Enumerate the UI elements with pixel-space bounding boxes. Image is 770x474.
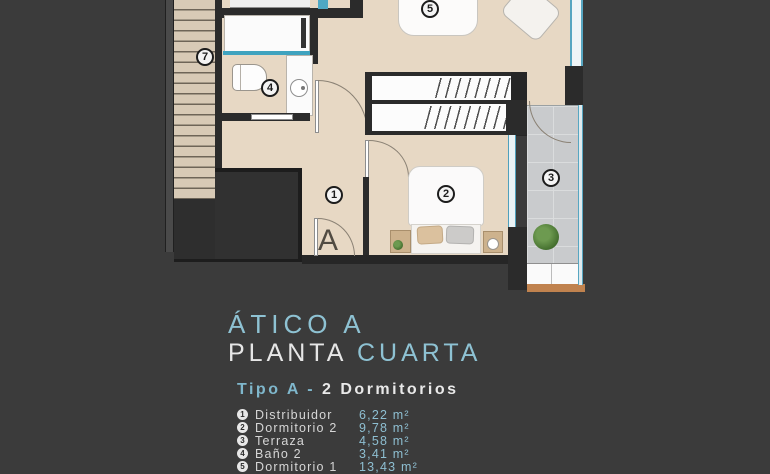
legend-room-area: 6,22 m²	[359, 408, 410, 422]
sink-drain	[301, 86, 305, 90]
legend-room-name: Terraza	[255, 434, 359, 448]
shower-fixture	[301, 18, 306, 48]
legend-room-area: 4,58 m²	[359, 434, 410, 448]
sink-icon	[290, 79, 308, 97]
unit-type-heading: Tipo A - 2 Dormitorios	[237, 381, 481, 399]
room-label-hall: 1	[325, 186, 343, 204]
room-label-room5: 5	[421, 0, 439, 18]
legend-bullet-icon: 2	[237, 422, 248, 433]
legend-row: 1 Distribuidor 6,22 m²	[237, 408, 481, 421]
bedroom2-left-wall	[363, 177, 369, 258]
terrace-window	[508, 135, 516, 227]
legend-room-area: 9,78 m²	[359, 421, 410, 435]
wardrobe-bottom	[372, 104, 520, 131]
terrace-wood-edge	[527, 284, 585, 292]
pillow-tan	[417, 225, 444, 244]
plant-icon	[393, 240, 403, 250]
info-panel: ÁTICO A PLANTA CUARTA Tipo A - 2 Dormito…	[228, 309, 481, 473]
legend-room-area: 3,41 m²	[359, 447, 410, 461]
corner-wall	[350, 0, 363, 18]
legend-room-name: Dormitorio 1	[255, 460, 359, 474]
terrace-bottom-pillar	[508, 227, 527, 290]
unit-type-rest: 2 Dormitorios	[322, 381, 459, 398]
legend-bullet-icon: 3	[237, 435, 248, 446]
room5-window-pillar	[565, 66, 583, 105]
legend-bullet-icon: 1	[237, 409, 248, 420]
floor-plan: A 7 4 5 1 2 3	[165, 0, 586, 292]
void-area	[215, 168, 302, 262]
hanger-icons	[422, 106, 518, 129]
side-table-icon	[487, 238, 499, 250]
terrace-top-pillar	[506, 100, 527, 135]
terrace-storage	[527, 263, 578, 284]
legend-room-area: 13,43 m²	[359, 460, 418, 474]
room-label-bath: 4	[261, 79, 279, 97]
legend-row: 3 Terraza 4,58 m²	[237, 434, 481, 447]
page-title: ÁTICO A	[228, 309, 481, 339]
room5-window	[570, 0, 583, 66]
window-glass-tick	[318, 0, 328, 9]
room-legend: 1 Distribuidor 6,22 m² 2 Dormitorio 2 9,…	[237, 408, 481, 473]
page-subtitle: PLANTA CUARTA	[228, 339, 481, 367]
legend-bullet-icon: 4	[237, 448, 248, 459]
wardrobe-top	[372, 76, 520, 100]
legend-room-name: Baño 2	[255, 447, 359, 461]
subtitle-word-cuarta: CUARTA	[357, 339, 481, 367]
room-label-stairs: 7	[196, 48, 214, 66]
legend-room-name: Distribuidor	[255, 408, 359, 422]
unit-type-accent: Tipo A -	[237, 381, 315, 398]
room-label-terrace: 3	[542, 169, 560, 187]
toilet-tank-line	[240, 65, 241, 90]
shower-tray	[224, 15, 310, 53]
pillow-gray	[446, 226, 475, 245]
page: { "title": { "line1": "ÁTICO A", "line2_…	[0, 0, 770, 460]
legend-row: 4 Baño 2 3,41 m²	[237, 447, 481, 460]
void-under-stairs	[174, 199, 215, 262]
terrace-glass-rail	[578, 105, 583, 285]
legend-room-name: Dormitorio 2	[255, 421, 359, 435]
hanger-icons	[432, 78, 518, 98]
plant-icon-terrace	[533, 224, 559, 250]
legend-bullet-icon: 5	[237, 461, 248, 472]
bath-sliding-door	[251, 114, 293, 120]
subtitle-word-planta: PLANTA	[228, 339, 346, 367]
stair-right-wall	[215, 0, 222, 168]
exterior-window-strip	[230, 0, 310, 8]
stair-outer-wall	[165, 0, 174, 252]
staircase	[174, 0, 215, 199]
room-label-bedroom2: 2	[437, 185, 455, 203]
legend-row: 2 Dormitorio 2 9,78 m²	[237, 421, 481, 434]
section-marker: A	[318, 224, 338, 258]
legend-row: 5 Dormitorio 1 13,43 m²	[237, 460, 481, 473]
